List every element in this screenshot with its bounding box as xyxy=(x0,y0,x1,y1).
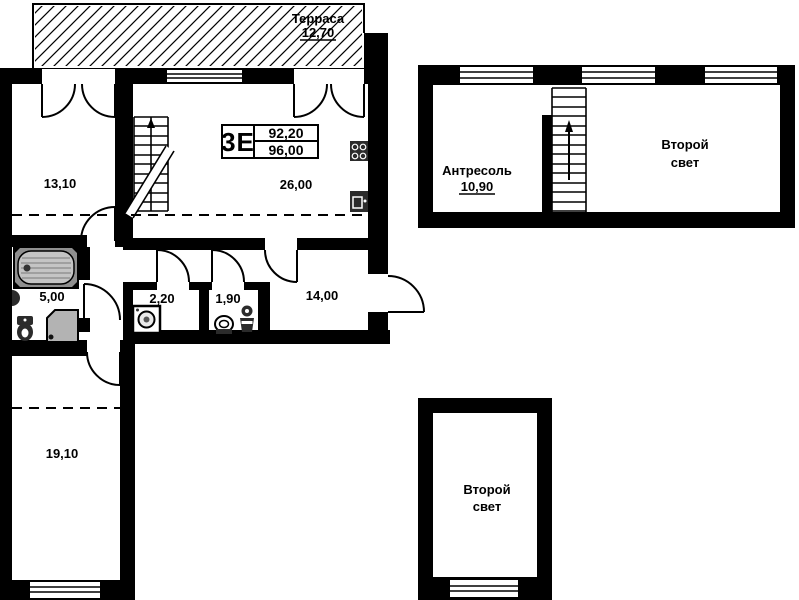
mezz-window-2 xyxy=(582,67,655,83)
washing-machine-icon xyxy=(133,306,160,333)
door-room13-terrace xyxy=(42,84,115,117)
wall-openings xyxy=(42,69,388,356)
door-wc xyxy=(212,250,244,282)
void-wall-left xyxy=(418,398,433,600)
room-13-label: 13,10 xyxy=(44,176,77,191)
opening-terrace-door-2 xyxy=(294,69,364,84)
void-wall-top xyxy=(418,398,552,413)
wall-bathroom-right-stub xyxy=(78,318,90,332)
bathtub-icon xyxy=(14,247,78,288)
void-second-light-line1: Второй xyxy=(463,482,510,497)
wall-below-living xyxy=(123,238,368,250)
wall-sink-icon xyxy=(12,290,20,306)
kitchen-sink-icon xyxy=(350,191,368,212)
room-5-label: 5,00 xyxy=(39,289,64,304)
mezz-wall-bottom xyxy=(418,212,795,228)
opening-wc-door xyxy=(212,282,244,290)
wall-room19-right xyxy=(120,356,135,600)
mezzanine-area-label: 10,90 xyxy=(461,179,494,194)
opening-room19-door xyxy=(87,340,120,356)
opening-entrance xyxy=(368,274,388,312)
mezz-window-3 xyxy=(705,67,777,83)
room-1-label: 1,90 xyxy=(215,291,240,306)
terrace-area-label: 12,70 xyxy=(302,25,335,40)
room-14-label: 14,00 xyxy=(306,288,339,303)
mezzanine-name-label: Антресоль xyxy=(442,163,512,178)
wall-room13-right xyxy=(115,84,133,247)
mezz-wall-left xyxy=(418,65,433,228)
wall-bathroom-right xyxy=(78,247,90,280)
floor-plan-svg: 3Е 92,20 96,00 Терраса 12,70 13,10 26,00… xyxy=(0,0,799,600)
unit-area-lower: 96,00 xyxy=(268,142,303,158)
window-room19-bottom xyxy=(30,582,100,598)
mezz-stair-partition xyxy=(542,115,552,212)
void-window xyxy=(450,580,518,597)
opening-terrace-door-1 xyxy=(42,69,115,84)
staircase-mezzanine xyxy=(552,88,586,212)
room-26-label: 26,00 xyxy=(280,177,313,192)
floor-plan-page: 3Е 92,20 96,00 Терраса 12,70 13,10 26,00… xyxy=(0,0,799,600)
mezz-wall-right xyxy=(780,65,795,228)
mezz-second-light-line2: свет xyxy=(671,155,699,170)
stove-icon xyxy=(350,141,368,161)
mezz-second-light-line1: Второй xyxy=(661,137,708,152)
unit-type-label: 3Е xyxy=(221,127,255,157)
terrace-name-label: Терраса xyxy=(292,11,345,26)
wall-terrace-corner xyxy=(364,33,388,84)
window-living-top xyxy=(167,70,242,82)
wall-laundry-left xyxy=(123,282,133,332)
door-bathroom xyxy=(84,284,120,320)
wall-small-rooms-top xyxy=(123,282,270,290)
room-19-label: 19,10 xyxy=(46,446,79,461)
mezzanine-block: Антресоль 10,90 Второй свет xyxy=(418,65,795,228)
void-second-light-line2: свет xyxy=(473,499,501,514)
mezz-window-1 xyxy=(460,67,533,83)
toilet-icon-bathroom xyxy=(17,316,33,341)
opening-laundry-door xyxy=(157,282,189,290)
sink-icon-wc xyxy=(240,306,254,333)
lower-void-block: Второй свет xyxy=(418,398,552,600)
opening-living-corridor xyxy=(265,238,297,250)
wall-corridor-bottom xyxy=(123,330,390,344)
door-room19 xyxy=(87,352,120,386)
wall-left xyxy=(0,68,12,600)
door-living-corridor xyxy=(265,250,297,282)
door-entrance xyxy=(388,276,424,312)
void-wall-right xyxy=(537,398,552,600)
unit-stamp: 3Е 92,20 96,00 xyxy=(221,125,318,158)
shower-icon xyxy=(47,310,78,342)
door-living-terrace xyxy=(294,84,364,117)
wall-laundry-wc-divider xyxy=(199,290,209,332)
unit-area-upper: 92,20 xyxy=(268,125,303,141)
wall-room13-bottom xyxy=(0,235,87,247)
room-2-label: 2,20 xyxy=(149,291,174,306)
toilet-icon-wc xyxy=(215,316,233,334)
up-arrow-icon xyxy=(147,118,155,128)
wall-wc-right xyxy=(258,282,270,332)
door-laundry xyxy=(157,250,189,282)
